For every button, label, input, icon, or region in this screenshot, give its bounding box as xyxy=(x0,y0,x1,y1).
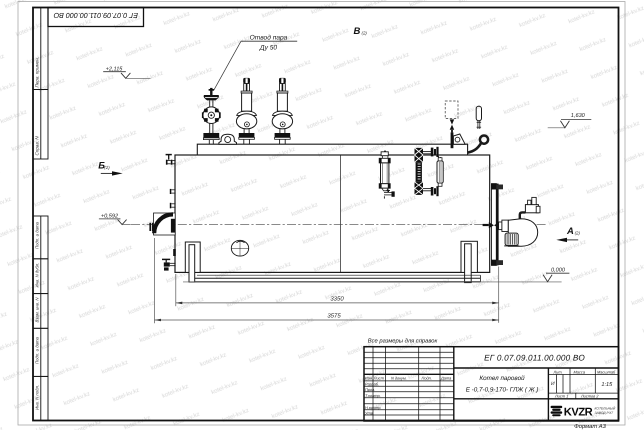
svg-text:Изм.: Изм. xyxy=(365,376,373,381)
svg-text:Котел паровой: Котел паровой xyxy=(479,375,525,382)
svg-text:Разраб.: Разраб. xyxy=(365,382,379,387)
svg-text:Лист 1: Лист 1 xyxy=(554,394,568,399)
svg-text:3575: 3575 xyxy=(327,313,341,320)
svg-text:1:15: 1:15 xyxy=(601,382,613,388)
svg-text:Масштаб: Масштаб xyxy=(597,369,616,374)
svg-text:Пров.: Пров. xyxy=(365,387,375,392)
svg-text:Взам. инв. N: Взам. инв. N xyxy=(35,297,40,323)
svg-text:ЗАВОД РЭТ: ЗАВОД РЭТ xyxy=(595,411,615,415)
svg-text:Все размеры для справок: Все размеры для справок xyxy=(368,337,438,344)
svg-text:Подп. и дата: Подп. и дата xyxy=(35,336,40,364)
svg-text:Т.контр.: Т.контр. xyxy=(365,393,381,398)
svg-text:Е -0,7-0,9-170- ГЛЖ ( Ж ): Е -0,7-0,9-170- ГЛЖ ( Ж ) xyxy=(466,387,539,394)
svg-text:Ду 50: Ду 50 xyxy=(259,45,278,52)
svg-text:Листов 2: Листов 2 xyxy=(580,394,599,399)
svg-text:Инв. N дубл.: Инв. N дубл. xyxy=(35,263,40,288)
svg-text:(2): (2) xyxy=(104,165,110,170)
svg-text:ЕГ 0.07.09.011.00.000 ВО: ЕГ 0.07.09.011.00.000 ВО xyxy=(53,11,138,20)
svg-text:Подп. и дата: Подп. и дата xyxy=(35,221,40,249)
svg-text:(2): (2) xyxy=(362,31,368,36)
svg-text:Формат А3: Формат А3 xyxy=(574,423,606,430)
svg-text:Инв. N подл.: Инв. N подл. xyxy=(35,385,40,410)
svg-text:Утв.: Утв. xyxy=(365,410,374,415)
svg-text:И: И xyxy=(551,381,555,387)
svg-text:KVZR: KVZR xyxy=(564,407,593,419)
svg-text:Отвод пара: Отвод пара xyxy=(250,34,288,41)
svg-text:КОТЕЛЬНЫЙ: КОТЕЛЬНЫЙ xyxy=(595,406,616,410)
svg-text:Н.контр.: Н.контр. xyxy=(365,405,381,410)
svg-text:В: В xyxy=(354,26,361,37)
svg-text:1,630: 1,630 xyxy=(571,113,586,119)
svg-text:Перв. примен.: Перв. примен. xyxy=(35,57,40,88)
svg-text:0,000: 0,000 xyxy=(551,267,566,273)
svg-text:3350: 3350 xyxy=(330,296,344,303)
svg-text:Справ. N: Справ. N xyxy=(35,136,40,156)
svg-text:Лит.: Лит. xyxy=(553,369,563,374)
svg-text:А: А xyxy=(566,226,574,237)
svg-text:Лист: Лист xyxy=(373,376,385,381)
svg-text:ЕГ 0.07.09.011.00.000 ВО: ЕГ 0.07.09.011.00.000 ВО xyxy=(484,354,585,363)
svg-text:Подп.: Подп. xyxy=(422,376,432,381)
svg-text:N докум.: N докум. xyxy=(391,376,407,381)
svg-text:Дата: Дата xyxy=(440,376,452,381)
svg-text:Масса: Масса xyxy=(574,369,586,374)
svg-text:(2): (2) xyxy=(575,230,581,235)
